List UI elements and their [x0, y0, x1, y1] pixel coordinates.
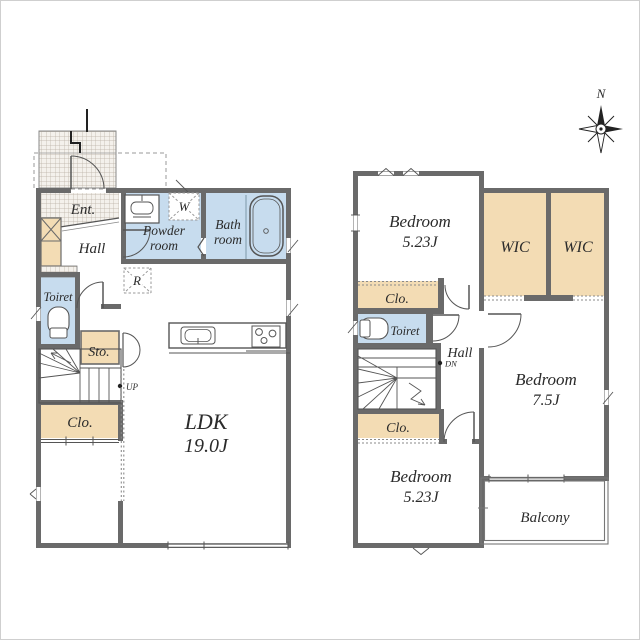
symbol-label-washer: W — [179, 199, 191, 214]
porch-hatch — [39, 131, 116, 188]
bedroom-bottom-door — [444, 412, 474, 442]
symbol-label-fridge: R — [132, 273, 141, 288]
toilet-fixture-2f — [360, 318, 388, 339]
first-floor: Ent. Hall Powder room W Bath room Toiret… — [30, 109, 298, 550]
storage-double-doors — [123, 333, 140, 367]
compass-center-dot — [599, 127, 602, 130]
room-label-bedroom-top-1: Bedroom — [389, 212, 451, 231]
room-label-bedroom-top-2: 5.23J — [402, 234, 438, 251]
room-label-ldk-1: LDK — [184, 409, 229, 434]
room-label-bath-1: Bath — [215, 217, 241, 232]
stairs-2f — [358, 349, 436, 409]
room-label-closet-upper: Clo. — [385, 292, 409, 307]
room-label-wic-left: WIC — [500, 239, 530, 256]
floor-plan-image: Ent. Hall Powder room W Bath room Toiret… — [0, 0, 640, 640]
floor-plan-drawing: Ent. Hall Powder room W Bath room Toiret… — [1, 1, 639, 639]
toilet-fixture-1f — [48, 307, 69, 338]
room-label-closet-1f: Clo. — [67, 415, 92, 431]
window-ldk-south — [168, 542, 288, 550]
room-label-ldk-2: 19.0J — [184, 435, 229, 457]
room-label-entrance: Ent. — [70, 202, 96, 218]
second-floor: Bedroom 5.23J WIC WIC Clo. Toiret Hall D… — [348, 169, 613, 555]
room-label-closet-lower: Clo. — [386, 421, 410, 436]
bedroom-top-door — [445, 285, 469, 309]
room-label-bedroom-bottom-1: Bedroom — [390, 467, 452, 486]
vanity-sink — [125, 195, 159, 223]
bedroom-right-door — [488, 314, 521, 347]
room-label-bedroom-right-1: Bedroom — [515, 370, 577, 389]
compass-north-label: N — [596, 86, 607, 101]
room-label-wic-right: WIC — [563, 239, 593, 256]
room-label-toilet-2f: Toiret — [391, 324, 420, 338]
room-label-bedroom-bottom-2: 5.23J — [403, 489, 439, 506]
stairs-up-label: UP — [126, 382, 138, 392]
hall-door — [77, 282, 103, 308]
room-label-powder-1: Powder — [142, 223, 186, 238]
room-label-bedroom-right-2: 7.5J — [532, 392, 560, 409]
room-label-storage: Sto. — [88, 345, 109, 360]
shoe-cabinet — [41, 218, 61, 266]
room-label-powder-2: room — [150, 238, 178, 253]
room-label-balcony: Balcony — [520, 510, 569, 526]
compass-rose: N — [579, 86, 623, 153]
room-label-hall-1f: Hall — [78, 241, 106, 257]
stairs-dn-dot — [438, 361, 442, 365]
toilet-door-2f — [433, 315, 459, 341]
room-label-toilet-1f: Toiret — [44, 290, 73, 304]
stairs-dn-label: DN — [444, 359, 458, 369]
room-label-bath-2: room — [214, 232, 242, 247]
